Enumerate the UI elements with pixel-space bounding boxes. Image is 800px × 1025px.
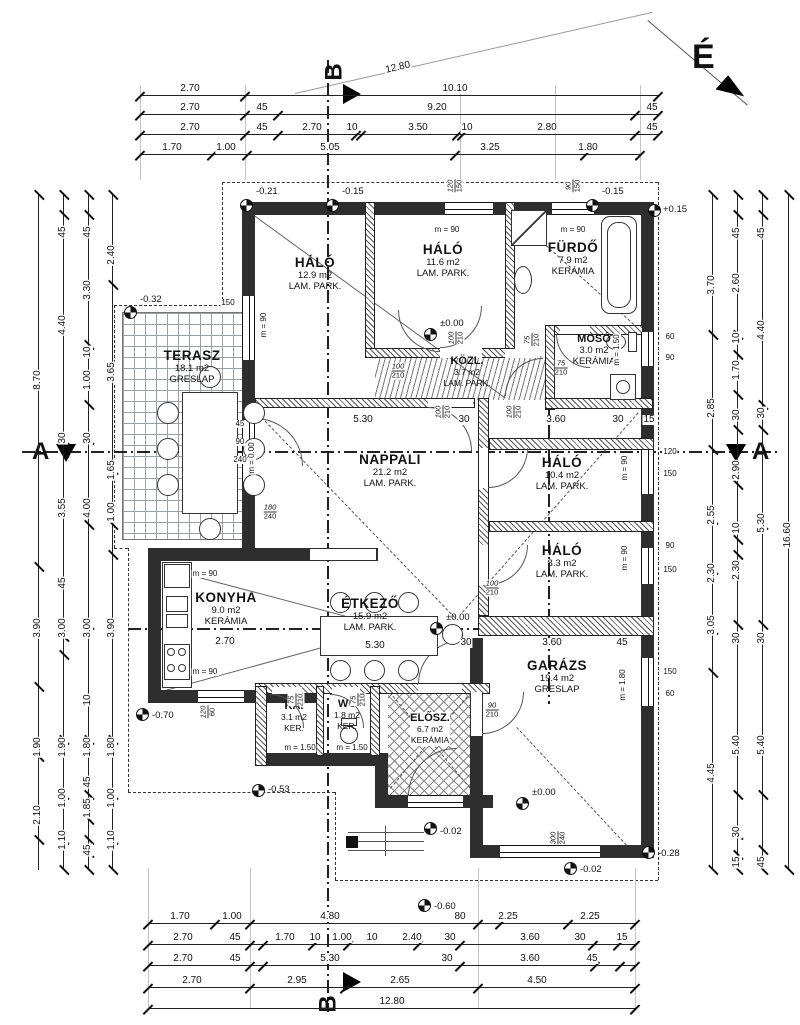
chair [199, 518, 221, 540]
sill-label: m = 90 [192, 570, 219, 578]
dim-chain [140, 154, 640, 155]
porch-column [346, 836, 358, 848]
dim: 4.40 [757, 319, 767, 340]
window [641, 450, 654, 494]
level-value: -0.02 [580, 864, 602, 875]
dim: 1.70 [161, 143, 182, 153]
wall-segment [470, 638, 483, 858]
dim: 120 [662, 448, 677, 456]
dim: 30 [732, 631, 742, 644]
bathroom-sink [514, 266, 532, 294]
dim-chain [148, 923, 635, 924]
room-moso: MOSÓ 3.0 m2 KERÁMIA [573, 333, 616, 367]
roof-outline [128, 792, 335, 793]
dim: 15 [642, 415, 655, 425]
dim-chain [148, 1008, 635, 1009]
dim: 15 [615, 933, 628, 943]
dim: 10 [732, 521, 742, 534]
dim: 10 [732, 331, 742, 344]
dim-chain [148, 944, 635, 945]
bathtub-inner [607, 222, 631, 308]
level-value: ±0.00 [440, 318, 464, 329]
dim: 45 [83, 843, 93, 856]
door-arc [488, 448, 528, 488]
dim: 2.70 [181, 976, 202, 986]
level-value: -0.15 [602, 186, 624, 197]
level-marker [516, 797, 529, 810]
dim: 30 [457, 415, 470, 425]
room-etkezo: ÉTKEZŐ 15.9 m2 LAM. PARK. [341, 596, 399, 633]
window [445, 202, 493, 215]
dim: 60 [665, 690, 676, 698]
dim: 1.00 [221, 912, 242, 922]
door-opening [418, 684, 462, 693]
roof-outline [114, 548, 128, 549]
dim: 30 [732, 408, 742, 421]
garage-door-size: 300240 [550, 832, 567, 845]
level-value: -0.60 [434, 901, 456, 912]
dim: 5.40 [757, 734, 767, 755]
dim: 2.70 [172, 933, 193, 943]
dim: 150 [662, 470, 677, 478]
dim: 30 [459, 638, 472, 648]
sill-label: m = 90 [560, 226, 587, 234]
step [348, 841, 424, 842]
kitchen-sink [166, 614, 188, 628]
room-furdo: FÜRDŐ 7.9 m2 KERÁMIA [548, 240, 599, 277]
dim-chain [38, 195, 39, 870]
dim: 45 [615, 638, 628, 648]
dim: 1.80 [107, 736, 117, 757]
dim: 150 [220, 299, 235, 307]
dim: 10.10 [441, 84, 468, 94]
stove-burner [167, 648, 175, 656]
dim: 1.00 [331, 933, 352, 943]
level-marker [240, 199, 253, 212]
chair [157, 474, 179, 496]
dim: 2.65 [389, 976, 410, 986]
room-halo-3: HÁLÓ 10.4 m2 LAM. PARK. [536, 455, 589, 492]
door-size: 100210 [392, 363, 405, 380]
level-marker [586, 199, 599, 212]
dim: 1.80 [577, 143, 598, 153]
dim: 30 [757, 406, 767, 419]
dim: 2.70 [179, 103, 200, 113]
dim: 1.00 [107, 501, 117, 522]
dim: 1.00 [107, 787, 117, 808]
sill-label: m = 1.50 [613, 333, 621, 366]
dim: 4.80 [319, 912, 340, 922]
dim: 5.30 [364, 641, 385, 651]
window [641, 658, 654, 706]
sill-label: m = 90 [621, 455, 629, 482]
door-size: 100210 [448, 332, 465, 345]
section-b-arrow [343, 84, 361, 104]
level-marker [564, 862, 577, 875]
dim: 12.80 [378, 997, 405, 1007]
dim: 2.70 [214, 637, 235, 647]
dim: 45 [228, 933, 241, 943]
dim: 2.70 [301, 123, 322, 133]
door-opening [471, 692, 482, 736]
dim: 3.00 [58, 617, 68, 638]
stove-burner [167, 664, 175, 672]
dim: 10 [345, 123, 358, 133]
sill-label: m = 90 [260, 312, 268, 339]
door-size: 100210 [486, 580, 499, 597]
dim: 16.60 [783, 521, 793, 548]
section-b-label: B [315, 995, 343, 1012]
dim: 30 [573, 933, 586, 943]
dim-chain [112, 195, 113, 870]
washing-machine-drum [616, 380, 630, 394]
dim: 2.70 [179, 84, 200, 94]
shower [511, 210, 547, 246]
dim: 45 [83, 775, 93, 788]
dim: 45 [757, 226, 767, 239]
dim: 3.65 [107, 361, 117, 382]
dim: 1.65 [107, 459, 117, 480]
wall-segment [478, 616, 654, 636]
dim: 5.05 [319, 143, 340, 153]
level-marker [326, 199, 339, 212]
dim: 5.40 [732, 734, 742, 755]
roof-outline [128, 548, 129, 792]
dim: 30 [443, 933, 456, 943]
dim: 30 [58, 431, 68, 444]
level-marker [648, 204, 661, 217]
dim: 1.90 [58, 736, 68, 757]
extension-line [640, 85, 641, 180]
level-value: ±0.00 [446, 612, 470, 623]
dim: 10 [460, 123, 473, 133]
dim: 3.05 [707, 614, 717, 635]
dim: 5.30 [352, 415, 373, 425]
dim: 4.00 [83, 497, 93, 518]
dim-chain [140, 95, 660, 96]
dim: 1.00 [83, 369, 93, 390]
dim: 3.60 [519, 933, 540, 943]
dim: 1.80 [83, 736, 93, 757]
door-size: 75210 [350, 694, 367, 707]
dim: 45 [83, 225, 93, 238]
dim: 10 [83, 693, 93, 706]
dim: 2.25 [579, 912, 600, 922]
dim: 4.40 [58, 314, 68, 335]
dim: 30 [611, 415, 624, 425]
window-size: 120150 [447, 180, 464, 193]
dim: 3.55 [58, 497, 68, 518]
level-marker [136, 708, 149, 721]
level-marker [642, 846, 655, 859]
reference-line [295, 12, 652, 94]
level-value: -0.28 [658, 848, 680, 859]
dim: 45 [585, 954, 598, 964]
wall-segment [316, 686, 324, 756]
north-label: É [692, 38, 715, 77]
dim: 80 [453, 912, 466, 922]
dim: 2.55 [707, 504, 717, 525]
dim: 5.30 [757, 512, 767, 533]
section-b-arrow [343, 972, 361, 992]
dim: 45 [732, 226, 742, 239]
sill-label: m = 1.50 [283, 744, 316, 752]
dim: 5.30 [319, 954, 340, 964]
window [641, 548, 654, 584]
wall-segment [365, 202, 375, 355]
section-b-label: B [321, 63, 349, 80]
dim: 2.70 [179, 123, 200, 133]
dim: 12.80 [384, 60, 413, 76]
dim: 45 [645, 103, 658, 113]
dim: 30 [757, 631, 767, 644]
roof-outline [658, 182, 659, 880]
dim: 9.20 [426, 103, 447, 113]
dim: 2.90 [732, 459, 742, 480]
dim: 45 [757, 855, 767, 868]
chair [243, 402, 265, 424]
dim: 3.60 [541, 638, 562, 648]
dim: 2.40 [107, 244, 117, 265]
wall-segment [545, 398, 653, 409]
dim: 1.00 [215, 143, 236, 153]
door-opening [479, 448, 488, 488]
dim: 10 [365, 933, 378, 943]
dim: 3.50 [407, 123, 428, 133]
dim-chain [140, 134, 660, 135]
dim: 2.80 [536, 123, 557, 133]
dim: 30 [732, 825, 742, 838]
room-konyha: KONYHA 9.0 m2 KERÁMIA [195, 590, 257, 627]
level-value: +0.15 [663, 204, 687, 215]
kitchen-sink [166, 596, 188, 612]
section-a-label: A [752, 438, 769, 466]
dim: 3.90 [107, 617, 117, 638]
sill-label: m = 90 [192, 668, 219, 676]
level-value: -0.15 [342, 186, 364, 197]
window [242, 296, 255, 360]
room-elosz: ELŐSZ. 6.7 m2 KERÁMIA [410, 712, 450, 746]
sill-label: m = 90 [434, 226, 461, 234]
dim: 1.00 [58, 787, 68, 808]
dim-chain [148, 987, 635, 988]
dim: 2.95 [286, 976, 307, 986]
dim: 1.90 [33, 736, 43, 757]
door-size: 75210 [288, 694, 305, 707]
floor-plan-drawing: TERASZ 18.1 m2 GRESLAP HÁLÓ 12.9 m2 LAM.… [0, 0, 800, 1025]
wall-segment [489, 521, 654, 532]
dim-chain [148, 965, 635, 966]
dim: 30 [440, 954, 453, 964]
dim: 3.25 [479, 143, 500, 153]
chair [398, 660, 419, 681]
dim: 10 [308, 933, 321, 943]
level-value: ±0.00 [532, 787, 556, 798]
dim: 90 [235, 438, 246, 446]
dim: 90 [665, 354, 676, 362]
dim: 8.70 [33, 369, 43, 390]
dim: 4.45 [707, 762, 717, 783]
stove-burner [178, 648, 186, 656]
dim: 3.90 [33, 617, 43, 638]
window-size: 90150 [565, 180, 582, 193]
door-opening [310, 549, 376, 560]
room-nappali: NAPPALI 21.2 m2 LAM. PARK. [359, 452, 421, 489]
door-size: 75210 [555, 360, 568, 377]
fridge [164, 564, 190, 588]
level-marker [252, 784, 265, 797]
dim: 3.70 [707, 274, 717, 295]
dim-chain [63, 195, 64, 870]
level-value: -0.32 [140, 294, 162, 305]
dim: 45 [255, 103, 268, 113]
dim: 1.10 [107, 829, 117, 850]
dim: 150 [662, 668, 677, 676]
stove-burner [178, 664, 186, 672]
door-opening [505, 349, 540, 358]
dim: 1.70 [169, 912, 190, 922]
room-halo-2: HÁLÓ 11.6 m2 LAM. PARK. [417, 242, 470, 279]
step [348, 832, 424, 833]
door-size: 100210 [506, 406, 523, 419]
dim: 1.70 [274, 933, 295, 943]
room-kozl: KÖZL. 3.7 m2 LAM. PARK. [443, 355, 490, 389]
dim: 2.40 [401, 933, 422, 943]
sill-label: m = 1.50 [335, 744, 368, 752]
chair [157, 438, 179, 460]
window [641, 332, 654, 366]
dim: 10 [83, 345, 93, 358]
step [348, 850, 424, 851]
dim: 3.60 [519, 954, 540, 964]
roof-outline [335, 880, 658, 881]
chair [398, 592, 419, 613]
toilet-tank [628, 332, 637, 352]
window-size: 12060 [200, 706, 217, 719]
dim: 2.30 [707, 562, 717, 583]
room-halo-4: HÁLÓ 8.3 m2 LAM. PARK. [536, 543, 589, 580]
level-marker [430, 622, 443, 635]
dim: 60 [665, 333, 676, 341]
dim: 1.85 [83, 797, 93, 818]
chair [157, 402, 179, 424]
step-direction-line [385, 826, 386, 856]
level-value: -0.70 [152, 710, 174, 721]
garage-door [500, 845, 600, 858]
wall-segment [370, 686, 380, 756]
room-terasz: TERASZ 18.1 m2 GRESLAP [164, 348, 221, 385]
sill-label: m = 1.80 [619, 668, 627, 701]
chair [364, 660, 385, 681]
door-size: 75210 [524, 334, 541, 347]
room-halo-1: HÁLÓ 12.9 m2 LAM. PARK. [289, 255, 342, 292]
dim: 3.30 [83, 279, 93, 300]
window-size: 180240 [264, 504, 277, 521]
roof-outline [222, 182, 658, 183]
level-value: -0.02 [440, 826, 462, 837]
dim: 1.10 [58, 829, 68, 850]
dim: 45 [645, 123, 658, 133]
level-marker [424, 822, 437, 835]
dim: 90 [665, 542, 676, 550]
entrance-door [408, 795, 463, 808]
window [198, 690, 244, 703]
dim: 240 [232, 456, 247, 464]
dim: 4.50 [526, 976, 547, 986]
chair [243, 474, 265, 496]
dim: 45 [255, 123, 268, 133]
wall-segment [148, 548, 161, 703]
level-marker [424, 328, 437, 341]
dim: 2.60 [732, 272, 742, 293]
wall-segment [255, 686, 267, 766]
level-value: -0.21 [256, 186, 278, 197]
level-marker [418, 899, 431, 912]
dim: 2.30 [732, 559, 742, 580]
dim: 15 [732, 855, 742, 868]
level-marker [124, 306, 137, 319]
door-size: 100210 [435, 406, 452, 419]
dim: 30 [83, 431, 93, 444]
roof-outline [335, 792, 336, 880]
dim: 2.10 [33, 804, 43, 825]
sill-label: m = 90 [621, 545, 629, 572]
room-garazs: GARÁZS 19.4 m2 GRESLAP [527, 658, 587, 695]
dim: 2.25 [497, 912, 518, 922]
dim: 45 [235, 420, 246, 428]
terrace-table [182, 392, 238, 514]
dim: 45 [228, 954, 241, 964]
level-value: -0.53 [268, 784, 290, 795]
roof-outline [222, 182, 223, 305]
dim: 2.85 [707, 397, 717, 418]
door-size: 90210 [486, 702, 499, 719]
sill-label: m = 0.00 [248, 441, 256, 474]
section-a-label: A [32, 438, 49, 466]
dim: 3.00 [83, 617, 93, 638]
dim: 150 [662, 566, 677, 574]
dim: 45 [58, 225, 68, 238]
chair [330, 660, 351, 681]
dim: 45 [58, 576, 68, 589]
dim: 3.60 [545, 415, 566, 425]
dim-chain [140, 114, 660, 115]
dim: 1.70 [732, 359, 742, 380]
dim: 2.70 [172, 954, 193, 964]
